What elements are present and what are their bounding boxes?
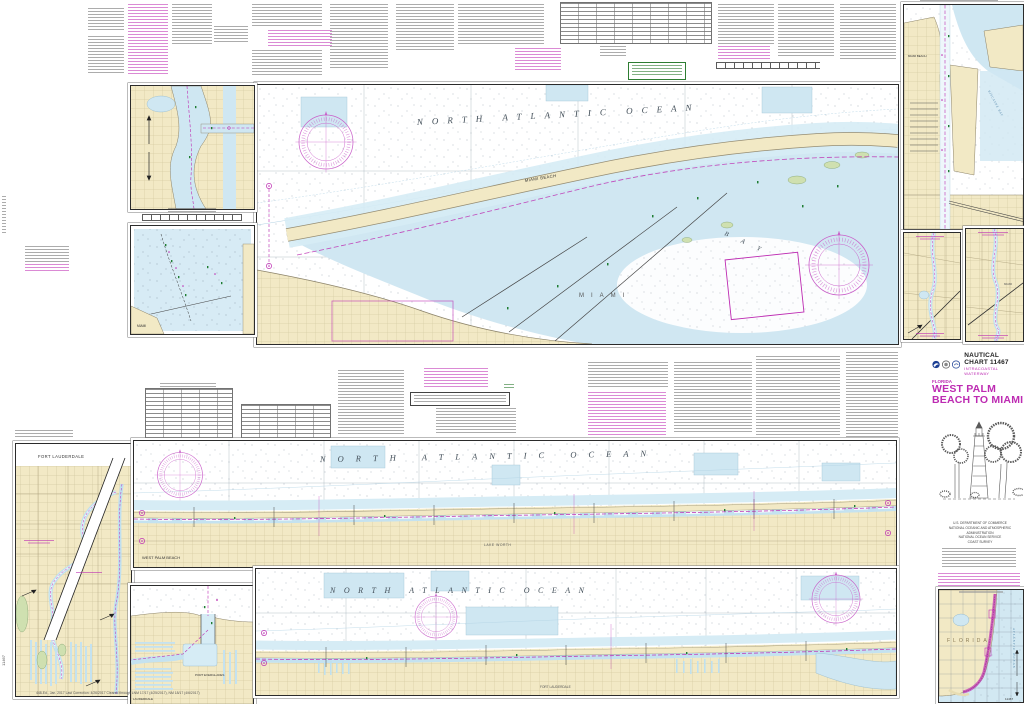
bay-inset-chart: MIAMI xyxy=(131,226,254,334)
miami-strip-chart: NORTH ATLANTIC OCEAN MIAMI BEACH MIAMI B… xyxy=(257,85,898,344)
title-block: NAUTICAL CHART 11467 INTRACOASTAL WATERW… xyxy=(932,352,1024,407)
turning-basin xyxy=(183,644,217,666)
note-block xyxy=(920,0,998,3)
index-chart-number: 11467 xyxy=(1005,697,1013,701)
note-block xyxy=(515,48,561,72)
inset-miami-river-1 xyxy=(903,232,961,340)
note-block xyxy=(252,4,322,26)
caution-note xyxy=(588,392,666,436)
note-block xyxy=(88,8,124,30)
corner-chart-number: 11467 xyxy=(1,655,6,666)
inset-lake-worth-inlet xyxy=(130,85,255,210)
note-block xyxy=(436,408,516,434)
index-map-florida: FLORIDA ATLANTIC OCEAN 11467 xyxy=(938,589,1024,703)
commerce-seal-icon xyxy=(942,359,950,370)
fort-lauderdale-chart: FORT LAUDERDALE xyxy=(16,444,131,696)
note-block xyxy=(718,4,774,44)
label-atlantic-ocean: ATLANTIC OCEAN xyxy=(1012,627,1016,669)
index-map-chart: FLORIDA ATLANTIC OCEAN 11467 xyxy=(939,590,1023,702)
inlet-inset-chart xyxy=(131,86,254,209)
label-florida: FLORIDA xyxy=(947,638,990,644)
margin-note xyxy=(25,246,69,262)
inset-biscayne-bay: MIAMI xyxy=(130,225,255,335)
chart-strip-miami: NORTH ATLANTIC OCEAN MIAMI BEACH MIAMI B… xyxy=(256,84,899,345)
publisher-line: NATIONAL OCEANIC AND ATMOSPHERIC ADMINIS… xyxy=(936,526,1024,536)
lighthouse-illustration xyxy=(935,402,1023,514)
note-block xyxy=(128,4,168,62)
note-block xyxy=(330,4,388,68)
note-block xyxy=(846,352,898,438)
chart-strip-west-palm-beach: NORTH ATLANTIC OCEAN WEST PALM BEACH LAK… xyxy=(133,440,897,568)
label-north-atlantic-ocean: NORTH ATLANTIC OCEAN xyxy=(329,586,592,595)
note-block xyxy=(338,370,404,434)
note-block xyxy=(840,4,896,60)
note-block xyxy=(252,50,322,76)
offshore-table xyxy=(241,404,331,440)
note-block xyxy=(396,4,454,50)
label-miami: MIAMI xyxy=(1004,282,1012,286)
note-block xyxy=(458,4,544,44)
label-miami: MIAMI xyxy=(137,324,146,328)
table-caption xyxy=(160,383,216,387)
inset-port-everglades: PORT EVERGLADES LAUDERDALE xyxy=(130,585,254,704)
note-block xyxy=(942,548,1016,568)
caution-note xyxy=(424,368,488,388)
note-block xyxy=(268,30,332,46)
inset-miami-river-2: MIAMI xyxy=(965,228,1024,342)
note-block xyxy=(172,4,212,46)
label-miami: MIAMI xyxy=(579,293,631,299)
port-everglades-chart: PORT EVERGLADES LAUDERDALE xyxy=(131,586,253,704)
scale-bar xyxy=(716,62,820,69)
label-miami-beach: MIAMI BEACH xyxy=(908,54,927,58)
note-block xyxy=(778,4,834,58)
panel-caption xyxy=(15,430,73,438)
label-west-palm-beach: WEST PALM BEACH xyxy=(142,555,180,560)
note-block xyxy=(128,64,168,76)
label-fort-lauderdale: FORT LAUDERDALE xyxy=(38,454,84,459)
label-lauderdale: LAUDERDALE xyxy=(133,697,153,701)
entrance-channel xyxy=(201,614,215,648)
boxed-note xyxy=(410,392,510,406)
note-block xyxy=(600,46,626,56)
refuge-note-box xyxy=(628,62,686,80)
tide-table xyxy=(560,2,712,44)
margin-note xyxy=(2,196,6,234)
chart-strip-miami-harbor: MIAMI BEACH BISCAYNE BAY xyxy=(903,4,1024,230)
river-inset-chart xyxy=(904,233,960,339)
note-block xyxy=(588,362,668,388)
publisher-line: COAST SURVEY xyxy=(936,540,1024,545)
noaa-logo-icon xyxy=(932,359,940,370)
note-block xyxy=(756,356,840,436)
chart-panel-fort-lauderdale: FORT LAUDERDALE xyxy=(15,443,132,697)
note-block xyxy=(214,26,248,44)
note-block xyxy=(718,46,770,59)
margin-note xyxy=(25,264,69,272)
edition-imprint: 448-Ed., Jan. 2017 Last Correction: 4/26… xyxy=(36,691,306,695)
river-inset-chart: MIAMI xyxy=(966,229,1023,341)
wpb-strip-chart: NORTH ATLANTIC OCEAN WEST PALM BEACH LAK… xyxy=(134,441,896,567)
note-block xyxy=(674,362,752,432)
chart-number-heading: NAUTICAL CHART 11467 xyxy=(964,352,1024,366)
label-lake-worth: LAKE WORTH xyxy=(484,543,511,547)
scale-caption xyxy=(168,208,216,212)
chart-series-heading: INTRACOASTAL WATERWAY xyxy=(964,366,1024,376)
note-block xyxy=(414,395,506,403)
caution-note xyxy=(938,573,1020,589)
chart-strip-fort-lauderdale-coast: NORTH ATLANTIC OCEAN FORT LAUDERDALE xyxy=(255,568,897,696)
label-fort-lauderdale: FORT LAUDERDALE xyxy=(540,685,571,689)
bridge-table xyxy=(145,388,233,440)
label-port-everglades: PORT EVERGLADES xyxy=(195,673,224,677)
note-block xyxy=(632,65,682,76)
harbor-strip-chart: MIAMI BEACH BISCAYNE BAY xyxy=(904,5,1023,229)
inset-scale-bar xyxy=(142,214,242,221)
nos-seal-icon xyxy=(952,359,960,370)
note-block xyxy=(88,36,124,74)
publisher-block: U.S. DEPARTMENT OF COMMERCE NATIONAL OCE… xyxy=(936,521,1024,581)
nautical-chart-sheet: NORTH ATLANTIC OCEAN MIAMI BEACH MIAMI B… xyxy=(0,0,1024,704)
refuge-mark xyxy=(504,384,514,390)
ftl-strip-chart: NORTH ATLANTIC OCEAN FORT LAUDERDALE xyxy=(256,569,896,695)
